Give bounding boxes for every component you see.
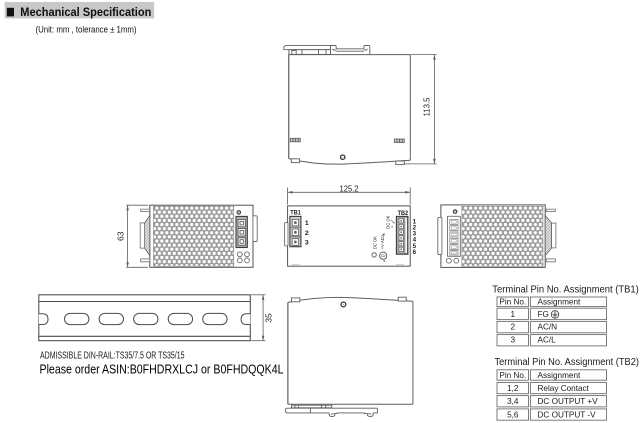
svg-text:DC OK: DC OK bbox=[386, 215, 391, 228]
svg-text:63: 63 bbox=[117, 231, 126, 241]
svg-text:+V ADJ.: +V ADJ. bbox=[380, 234, 385, 249]
svg-text:TB1: TB1 bbox=[290, 210, 301, 216]
svg-text:Pin No.: Pin No. bbox=[499, 371, 526, 380]
svg-text:FG: FG bbox=[538, 310, 549, 319]
svg-text:(Unit: mm , tolerance ± 1mm): (Unit: mm , tolerance ± 1mm) bbox=[36, 25, 137, 35]
svg-text:3,4: 3,4 bbox=[507, 397, 519, 406]
svg-text:1: 1 bbox=[511, 310, 516, 319]
svg-text:Terminal Pin No. Assignment (: Terminal Pin No. Assignment (TB1) bbox=[492, 285, 639, 296]
svg-text:125.2: 125.2 bbox=[340, 184, 360, 193]
svg-text:3: 3 bbox=[511, 336, 516, 345]
svg-text:Mechanical Specification: Mechanical Specification bbox=[20, 7, 151, 19]
svg-text:DC OUTPUT -V: DC OUTPUT -V bbox=[538, 410, 597, 419]
svg-text:113.5: 113.5 bbox=[423, 97, 432, 117]
svg-text:5,6: 5,6 bbox=[507, 410, 519, 419]
svg-text:Assignment: Assignment bbox=[538, 298, 582, 307]
svg-text:Please order ASIN:B0FHDRXLCJ o: Please order ASIN:B0FHDRXLCJ or B0FHDQQK… bbox=[40, 362, 284, 377]
svg-text:1,2: 1,2 bbox=[507, 384, 519, 393]
svg-text:ADMISSIBLE DIN-RAIL:TS35/7.5 O: ADMISSIBLE DIN-RAIL:TS35/7.5 OR TS35/15 bbox=[40, 350, 185, 361]
svg-text:DC OK: DC OK bbox=[372, 236, 377, 249]
svg-text:DC OUTPUT +V: DC OUTPUT +V bbox=[538, 397, 599, 406]
svg-text:Assignment: Assignment bbox=[538, 371, 582, 380]
svg-text:AC/L: AC/L bbox=[538, 336, 557, 345]
svg-text:3: 3 bbox=[305, 240, 309, 247]
svg-text:Terminal Pin No. Assignment (: Terminal Pin No. Assignment (TB2) bbox=[495, 357, 640, 368]
svg-text:2: 2 bbox=[305, 230, 309, 237]
svg-text:Relay Contact: Relay Contact bbox=[538, 384, 590, 393]
svg-text:6: 6 bbox=[413, 249, 417, 256]
svg-text:Pin No.: Pin No. bbox=[499, 298, 526, 307]
svg-text:35: 35 bbox=[264, 313, 273, 323]
svg-text:AC/N: AC/N bbox=[538, 323, 558, 332]
svg-text:2: 2 bbox=[511, 323, 516, 332]
svg-text:1: 1 bbox=[305, 220, 309, 227]
